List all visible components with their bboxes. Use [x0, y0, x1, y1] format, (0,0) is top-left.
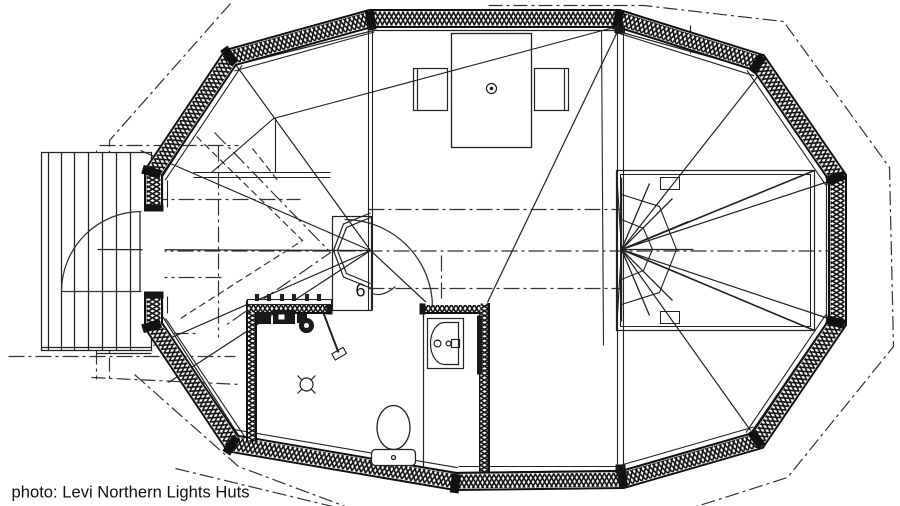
svg-text:photo: Levi Northern Lights Hu: photo: Levi Northern Lights Huts — [12, 484, 250, 502]
